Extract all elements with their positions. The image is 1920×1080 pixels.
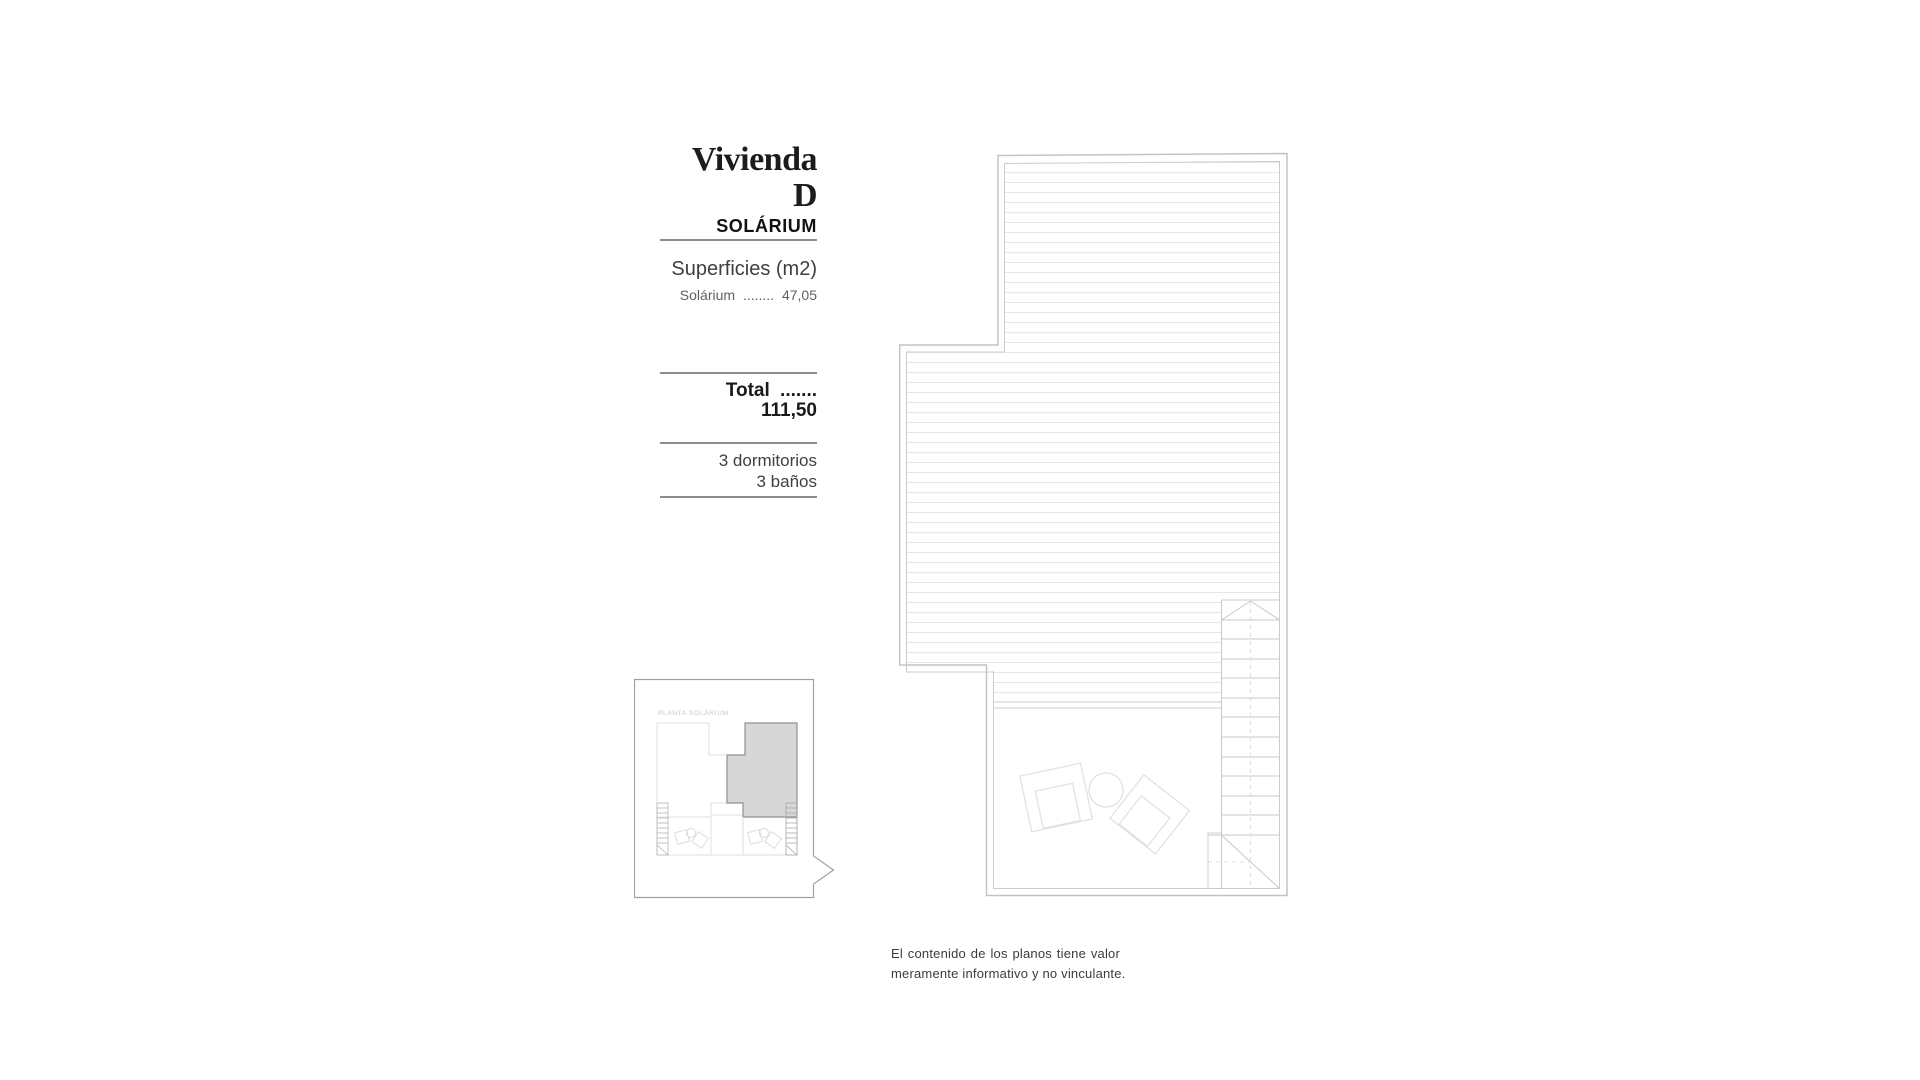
surface-value: 47,05 <box>782 287 817 303</box>
surface-leader: ........ <box>743 287 774 303</box>
key-plan-caption: PLANTA SOLÁRIUM <box>658 708 729 717</box>
total-leader: ....... <box>780 380 817 401</box>
surface-row-solarium: Solárium ........ 47,05 <box>660 288 817 303</box>
total-row: Total ....... 111,50 <box>660 381 817 421</box>
deck-edge-line <box>994 702 1222 708</box>
key-plan: PLANTA SOLÁRIUM <box>634 677 836 899</box>
solarium-deck-hatch <box>907 162 1280 702</box>
disclaimer: El contenido de los planos tiene valor m… <box>891 944 1120 984</box>
feature-bathrooms: 3 baños <box>660 472 817 492</box>
floor-plan-page: { "info_panel": { "title": "Vivienda D",… <box>0 0 1920 1080</box>
divider <box>660 372 817 374</box>
surface-label: Solárium <box>680 287 735 303</box>
main-floor-plan <box>899 152 1288 897</box>
divider <box>660 239 817 241</box>
total-label: Total <box>726 380 770 401</box>
info-panel: Vivienda D SOLÁRIUM Superficies (m2) Sol… <box>660 142 817 498</box>
disclaimer-line: meramente informativo y no vinculante. <box>891 964 1120 984</box>
divider <box>660 442 817 444</box>
divider <box>660 496 817 498</box>
surfaces-heading: Superficies (m2) <box>660 258 817 280</box>
key-plan-middle-room <box>711 815 743 855</box>
terrace-wall <box>1208 708 1222 889</box>
total-value: 111,50 <box>761 400 817 421</box>
terrace-furniture <box>1020 763 1190 854</box>
disclaimer-line: El contenido de los planos tiene valor <box>891 944 1120 964</box>
feature-bedrooms: 3 dormitorios <box>660 451 817 471</box>
page-title: Vivienda D <box>660 142 817 214</box>
armchair-icon <box>1110 775 1190 854</box>
round-table-icon <box>1089 773 1123 807</box>
plan-subtitle: SOLÁRIUM <box>660 217 817 235</box>
armchair-icon <box>1020 763 1092 832</box>
